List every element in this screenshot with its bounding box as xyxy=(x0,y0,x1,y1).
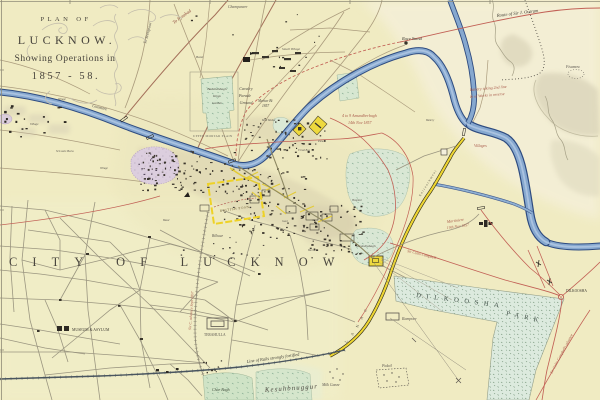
svg-text:Ferad Bux: Ferad Bux xyxy=(297,149,311,152)
svg-text:UPPER MORTAR PLAIN: UPPER MORTAR PLAIN xyxy=(193,134,233,138)
svg-text:Palace: Palace xyxy=(317,140,327,143)
svg-text:Ground: Ground xyxy=(240,100,254,105)
svg-text:Village: Village xyxy=(30,122,39,126)
svg-text:Village: Village xyxy=(100,167,109,170)
svg-text:Garden: Garden xyxy=(212,101,222,105)
svg-text:CITY OF LUCKNOW: CITY OF LUCKNOW xyxy=(9,255,349,269)
svg-text:Char Bagh: Char Bagh xyxy=(212,387,230,392)
svg-text:PLAN OF: PLAN OF xyxy=(40,16,91,23)
svg-text:1857 - 58.: 1857 - 58. xyxy=(32,71,100,82)
svg-text:4 to 9 Amundberbagh: 4 to 9 Amundberbagh xyxy=(342,113,377,118)
svg-text:DILKOOSHA: DILKOOSHA xyxy=(566,289,587,293)
svg-text:Race Stand: Race Stand xyxy=(401,36,423,41)
svg-text:Cavalry: Cavalry xyxy=(239,86,253,91)
svg-text:St Louis Bara: St Louis Bara xyxy=(56,149,74,153)
svg-text:Champaneer: Champaneer xyxy=(228,5,248,9)
svg-text:Fisamow: Fisamow xyxy=(565,65,580,69)
svg-text:Moti Mahal: Moti Mahal xyxy=(261,119,276,122)
svg-text:TERAHULLA: TERAHULLA xyxy=(204,333,226,337)
svg-text:Gaol: Gaol xyxy=(282,220,288,223)
svg-text:Bazar: Bazar xyxy=(163,219,171,222)
svg-text:MUSEUM & ASYLUM: MUSEUM & ASYLUM xyxy=(72,328,110,332)
svg-text:Milk Ganze: Milk Ganze xyxy=(321,383,340,387)
svg-text:Battery: Battery xyxy=(426,119,435,122)
svg-text:Rampore: Rampore xyxy=(401,316,417,321)
svg-text:Village: Village xyxy=(58,98,67,101)
svg-text:Mortar Bt: Mortar Bt xyxy=(257,99,273,103)
svg-text:Villages: Villages xyxy=(474,143,487,148)
svg-text:Hospital: Hospital xyxy=(351,199,362,202)
svg-text:1857: 1857 xyxy=(262,104,269,108)
svg-text:Bilhaur: Bilhaur xyxy=(212,234,224,238)
svg-text:Bank: Bank xyxy=(196,55,203,59)
svg-text:14th Nov 1857: 14th Nov 1857 xyxy=(348,120,373,125)
svg-text:Badshahbagh: Badshahbagh xyxy=(207,87,227,91)
svg-text:Kings: Kings xyxy=(212,94,221,98)
svg-text:LUCKNOW.: LUCKNOW. xyxy=(18,33,116,47)
svg-text:Secundrabagh: Secundrabagh xyxy=(356,244,376,248)
svg-text:Small Village: Small Village xyxy=(282,47,301,51)
svg-text:Palail: Palail xyxy=(381,363,393,368)
svg-text:Parade: Parade xyxy=(238,93,251,98)
svg-text:Barracks: Barracks xyxy=(308,249,318,252)
svg-text:Showing Operations in: Showing Operations in xyxy=(14,53,115,64)
